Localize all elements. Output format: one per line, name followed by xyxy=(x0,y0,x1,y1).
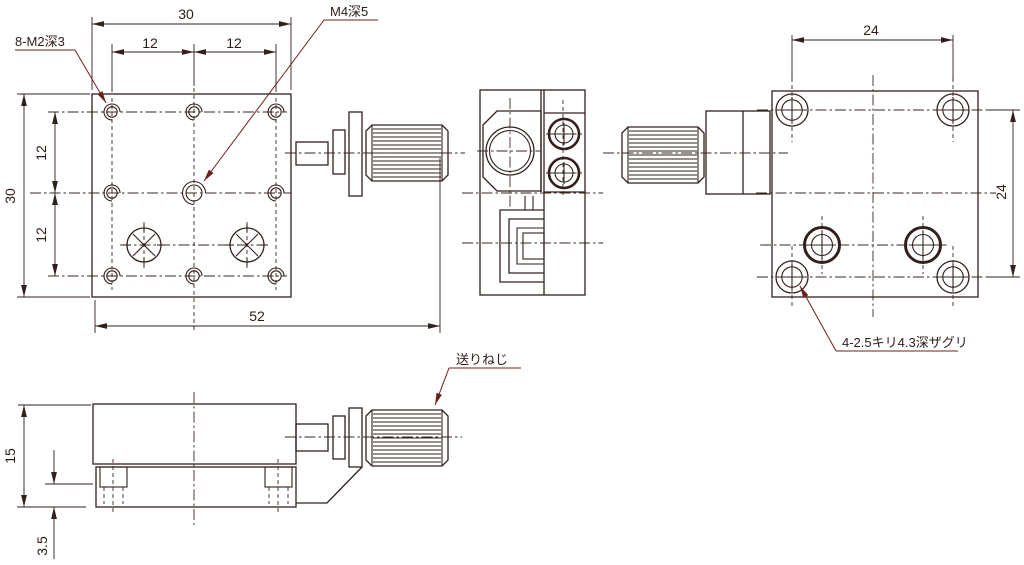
dim-left-upper-text: 12 xyxy=(33,145,49,161)
feed-screw-label-text: 送りねじ xyxy=(456,352,508,367)
dim-left-lower-text: 12 xyxy=(33,227,49,243)
plan-view-plate xyxy=(92,94,291,297)
cross-screw xyxy=(226,224,268,266)
dimension-side-height: 15 xyxy=(2,405,91,507)
dimension-back-width: 24 xyxy=(792,22,953,80)
dim-back-width-text: 24 xyxy=(863,22,879,38)
label-counterbore: 4-2.5キリ4.3深ザグリ xyxy=(800,286,968,351)
drawing-canvas: 30 12 12 30 12 12 52 xyxy=(0,0,1024,565)
dimension-top-width: 30 xyxy=(92,6,291,90)
counterbore-label-text: 4-2.5キリ4.3深ザグリ xyxy=(842,335,968,350)
dimension-base-thickness: 3.5 xyxy=(34,450,93,559)
center-tap-label-text: M4深5 xyxy=(330,4,368,19)
tap-holes-label-text: 8-M2深3 xyxy=(15,34,65,49)
feed-screw-unit-plan xyxy=(285,112,465,196)
bottom-face-view xyxy=(756,75,996,317)
slide-section xyxy=(500,196,544,282)
feed-screw-unit-back xyxy=(603,111,788,194)
feed-screw-unit-front xyxy=(285,408,462,503)
plan-view xyxy=(30,88,465,333)
dim-top-width-text: 30 xyxy=(178,6,194,22)
technical-drawing: 30 12 12 30 12 12 52 xyxy=(0,0,1024,565)
knurled-knob xyxy=(622,127,704,183)
dim-base-thickness-text: 3.5 xyxy=(34,536,50,556)
dimension-left-height: 30 xyxy=(2,94,90,297)
dim-back-height-text: 24 xyxy=(993,184,1009,200)
cross-screw xyxy=(123,224,165,266)
dimension-left-halves: 12 12 xyxy=(33,112,55,276)
dim-overall-length-text: 52 xyxy=(249,308,265,324)
dim-left-height-text: 30 xyxy=(2,188,18,204)
front-elevation-view xyxy=(93,392,462,525)
knurled-knob xyxy=(366,410,448,466)
knob-bracket xyxy=(296,467,362,503)
dimension-back-height: 24 xyxy=(988,110,1020,277)
dimension-top-halves: 12 12 xyxy=(112,35,276,92)
label-feed-screw: 送りねじ xyxy=(435,352,521,405)
side-section-view xyxy=(462,90,603,295)
stage-top-block xyxy=(93,404,296,464)
dim-top-half-right-text: 12 xyxy=(226,35,242,51)
dim-side-height-text: 15 xyxy=(2,448,18,464)
dim-top-half-left-text: 12 xyxy=(142,35,158,51)
